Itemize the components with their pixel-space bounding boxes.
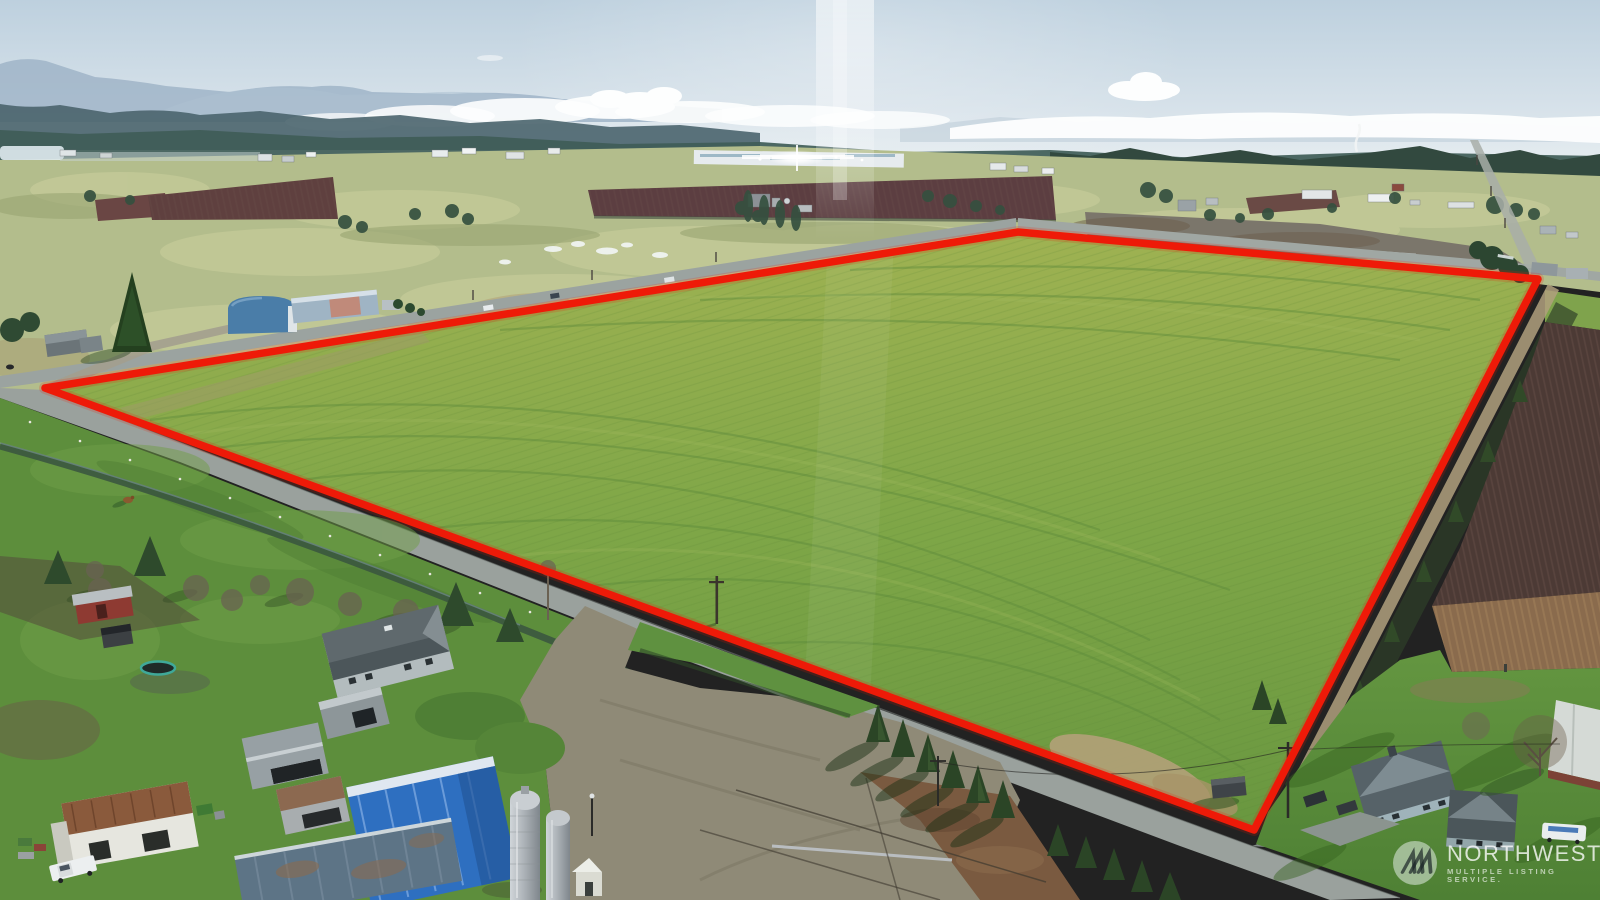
aerial-photo-canvas [0,0,1600,900]
lens-flare [816,0,874,240]
figure [1504,664,1507,672]
cow [6,365,14,370]
aerial-listing-photo: NORTHWEST MULTIPLE LISTING SERVICE. [0,0,1600,900]
bare-tree-small [1462,712,1490,740]
blue-quonset-barn [228,296,297,334]
distant-water [0,146,64,160]
house-dark-roof [1446,790,1518,852]
